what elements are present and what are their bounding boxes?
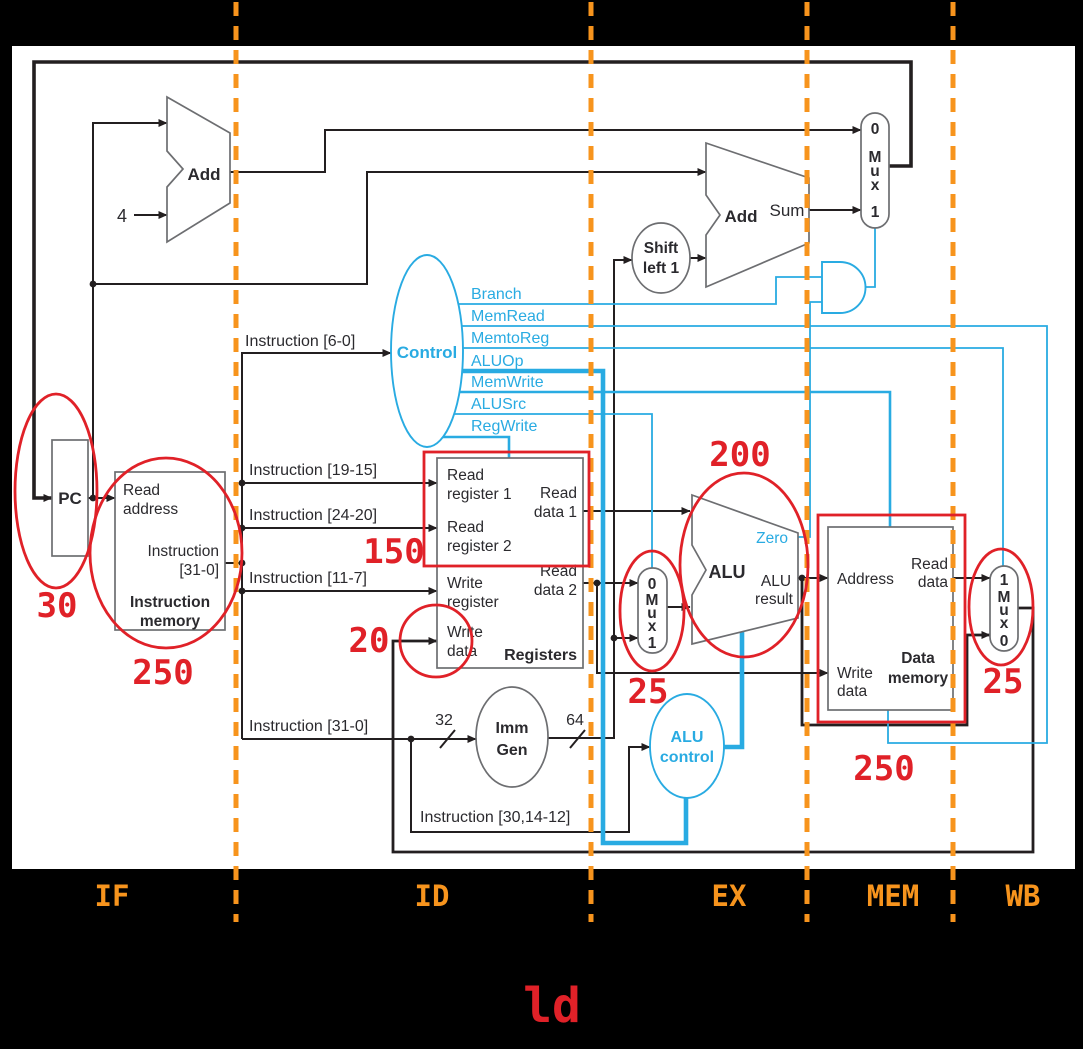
control-label: Control [397,343,457,362]
pcsrc-mux-0: 0 [871,121,880,138]
regs-wr-a: Write [447,575,483,592]
memtoreg-mux-1: 1 [1000,572,1009,589]
dmem-rd-b: data [918,574,949,591]
stage-ex: EX [712,879,747,913]
dmem-rd-a: Read [911,556,948,573]
stage-mem: MEM [867,879,919,913]
field-rs2: Instruction [24-20] [249,507,377,524]
alusrc-mux-0: 0 [648,576,657,593]
signal-alusrc: ALUSrc [471,396,526,413]
field-funct: Instruction [30,14-12] [420,809,570,826]
regs-rr2-b: register 2 [447,538,512,555]
signal-memread: MemRead [471,308,545,325]
latency-imem: 250 [132,653,193,693]
latency-pc: 30 [37,586,78,626]
dmem-name-a: Data [901,650,935,667]
signal-aluop: ALUOp [471,353,524,370]
pcsrc-mux-x: x [871,177,880,194]
immgen-a: Imm [496,720,529,737]
shift-left-oval [632,223,690,293]
alu-result-b: result [755,591,794,608]
regs-rd1-a: Read [540,485,577,502]
stage-id: ID [415,879,450,913]
imem-instruction-1: Instruction [147,543,219,560]
latency-register-write: 20 [349,621,390,661]
field-opcode: Instruction [6-0] [245,333,355,350]
pcsrc-mux-1: 1 [871,204,880,221]
shift-left-1b: left 1 [643,260,680,277]
imm-gen-oval [476,687,548,787]
width-64: 64 [566,712,584,729]
imem-instruction-2: [31-0] [179,562,219,579]
imem-read-address-1: Read [123,482,160,499]
dmem-wd-a: Write [837,665,873,682]
dmem-wd-b: data [837,683,868,700]
const4-label: 4 [117,206,127,226]
imem-name-2: memory [140,613,201,630]
width-32: 32 [435,712,453,729]
memtoreg-mux-x: x [1000,615,1009,632]
alu-label: ALU [709,562,746,582]
imem-name-1: Instruction [130,594,210,611]
latency-register-read: 150 [363,532,424,572]
regs-wd-a: Write [447,624,483,641]
datapath-svg: PC Read address Instruction [31-0] Instr… [0,0,1083,1049]
imem-read-address-2: address [123,501,178,518]
latency-memtoreg-mux: 25 [983,662,1024,702]
stage-wb: WB [1006,879,1041,913]
pc-adder-label: Add [187,165,220,184]
regs-rr1-a: Read [447,467,484,484]
immgen-b: Gen [496,742,527,759]
latency-alu: 200 [709,435,770,475]
sum-label: Sum [770,201,805,220]
regs-rd2-b: data 2 [534,582,577,599]
signal-memtoreg: MemtoReg [471,330,549,347]
alu-control-b: control [660,749,714,766]
regs-rr1-b: register 1 [447,486,512,503]
alu-result-a: ALU [761,573,791,590]
stage-if: IF [95,879,130,913]
field-full: Instruction [31-0] [249,718,368,735]
branch-adder-label: Add [724,207,757,226]
regs-rd1-b: data 1 [534,504,577,521]
shift-left-1a: Shift [644,240,678,257]
regs-name: Registers [504,647,577,664]
latency-dmem: 250 [853,749,914,789]
field-rs1: Instruction [19-15] [249,462,377,479]
signal-memwrite: MemWrite [471,374,544,391]
memtoreg-mux-0: 0 [1000,633,1009,650]
regs-wr-b: register [447,594,499,611]
alusrc-mux-x: x [648,618,657,635]
and-gate [822,262,866,313]
alusrc-mux-1: 1 [648,635,657,652]
datapath-diagram: PC Read address Instruction [31-0] Instr… [0,0,1083,1049]
alu-control-a: ALU [671,729,704,746]
latency-alusrc-mux: 25 [628,672,669,712]
alu-zero: Zero [756,530,788,547]
field-rd: Instruction [11-7] [249,570,367,587]
signal-regwrite: RegWrite [471,418,537,435]
instruction-name: ld [523,978,581,1034]
dmem-address: Address [837,571,894,588]
dmem-name-b: memory [888,670,949,687]
pc-label: PC [58,489,82,508]
signal-branch: Branch [471,286,522,303]
regs-rr2-a: Read [447,519,484,536]
